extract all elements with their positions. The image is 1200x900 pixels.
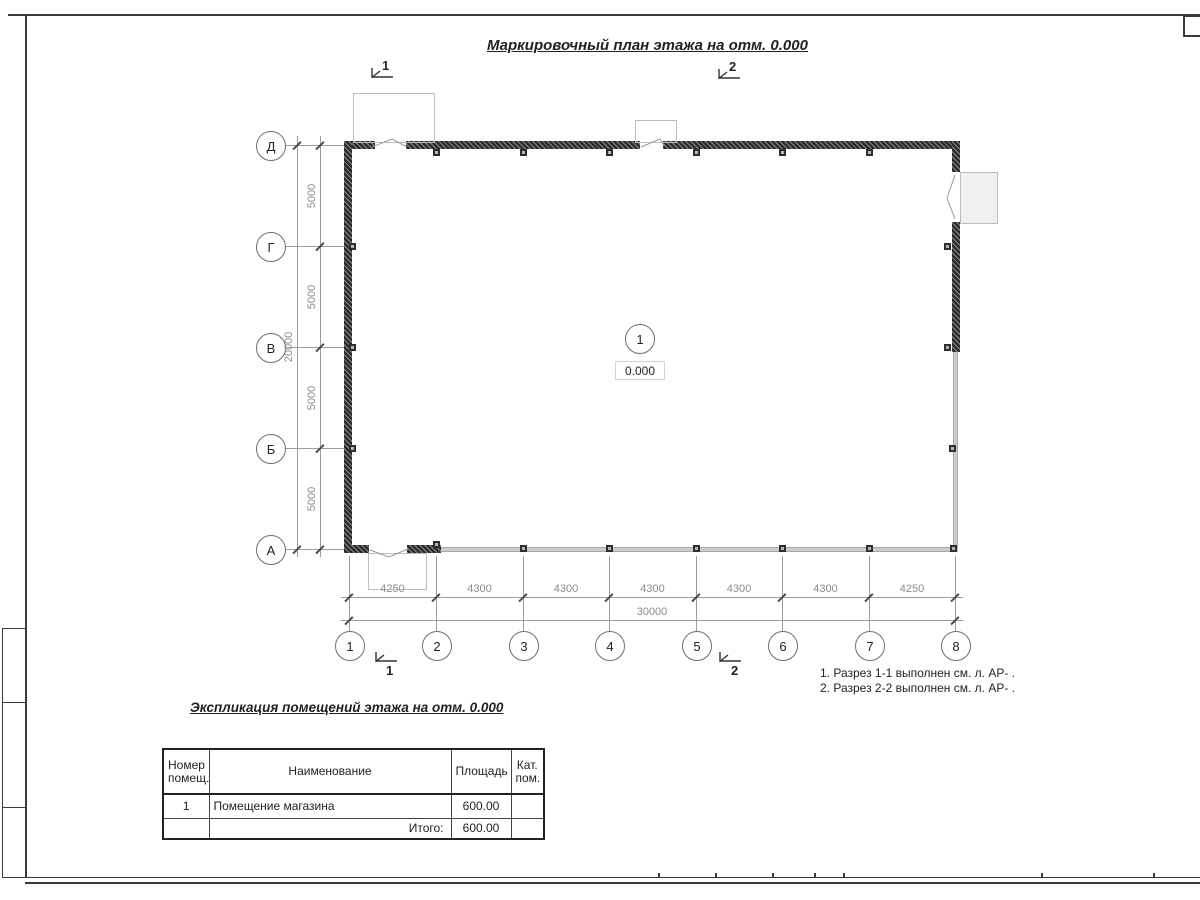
dimension-label: 5000 [306, 183, 318, 207]
dimension-total-label: 20000 [283, 332, 295, 363]
door-swing-icon [370, 139, 955, 557]
dimension-label: 5000 [306, 284, 318, 308]
dimension-label: 4300 [727, 583, 751, 595]
dimension-label: 4300 [554, 583, 578, 595]
column-marker [779, 545, 786, 552]
column-marker [433, 149, 440, 156]
title-block-divider [715, 873, 717, 878]
column-marker [349, 344, 356, 351]
column-marker [606, 545, 613, 552]
axis-col-bubble: 4 [595, 631, 625, 661]
axis-leader-line [284, 549, 344, 550]
section-label-1-top: 1 [382, 58, 389, 73]
axis-row-bubble: А [256, 535, 286, 565]
column-marker [520, 149, 527, 156]
cell-room-name: Помещение магазина [209, 794, 451, 818]
dimension-total-label: 30000 [637, 606, 668, 618]
section-label-2-bottom: 2 [731, 663, 738, 678]
column-marker [779, 149, 786, 156]
col-header-name: Наименование [209, 749, 451, 794]
title-block-divider [658, 873, 660, 878]
col-header-room-number: Номер помещ. [163, 749, 209, 794]
column-marker [949, 445, 956, 452]
section-label-2-top: 2 [729, 59, 736, 74]
column-marker [944, 243, 951, 250]
axis-col-bubble: 6 [768, 631, 798, 661]
axis-col-bubble: 8 [941, 631, 971, 661]
table-total-row: Итого: 600.00 [163, 818, 544, 839]
axis-row-bubble: Г [256, 232, 286, 262]
column-marker [349, 445, 356, 452]
drawing-sheet: { "drawing": { "title": "Маркировочный п… [0, 0, 1200, 900]
cell-room-number: 1 [163, 794, 209, 818]
column-marker [433, 541, 440, 548]
title-block-divider [1041, 873, 1043, 878]
dimension-label: 4300 [467, 583, 491, 595]
column-marker [950, 545, 957, 552]
cell-room-category [511, 794, 544, 818]
title-block-divider [1153, 873, 1155, 878]
axis-leader-line [284, 448, 344, 449]
col-header-area: Площадь [451, 749, 511, 794]
column-marker [520, 545, 527, 552]
dimension-label: 5000 [306, 385, 318, 409]
title-block-divider [772, 873, 774, 878]
axis-row-bubble: Д [256, 131, 286, 161]
title-block-divider [814, 873, 816, 878]
section-label-1-bottom: 1 [386, 663, 393, 678]
axis-col-bubble: 5 [682, 631, 712, 661]
axis-col-bubble: 3 [509, 631, 539, 661]
column-marker [866, 149, 873, 156]
dimension-label: 4250 [900, 583, 924, 595]
dimension-label: 4300 [640, 583, 664, 595]
column-marker [349, 243, 356, 250]
axis-col-bubble: 1 [335, 631, 365, 661]
room-number-bubble: 1 [625, 324, 655, 354]
column-marker [866, 545, 873, 552]
axis-row-bubble: Б [256, 434, 286, 464]
axis-col-bubble: 2 [422, 631, 452, 661]
dimension-label: 5000 [306, 486, 318, 510]
total-area: 600.00 [451, 818, 511, 839]
axis-leader-line [284, 246, 344, 247]
dimension-label: 4250 [380, 583, 404, 595]
column-marker [693, 149, 700, 156]
explication-table: Номер помещ. Наименование Площадь Кат. п… [162, 748, 545, 840]
dimension-label: 4300 [813, 583, 837, 595]
table-row: 1 Помещение магазина 600.00 [163, 794, 544, 818]
total-label: Итого: [209, 818, 451, 839]
room-elevation-box: 0.000 [615, 361, 665, 380]
column-marker [693, 545, 700, 552]
column-marker [944, 344, 951, 351]
column-marker [606, 149, 613, 156]
title-block-divider [843, 873, 845, 878]
cell-total-category [511, 818, 544, 839]
col-header-category: Кат. пом. [511, 749, 544, 794]
axis-col-bubble: 7 [855, 631, 885, 661]
section-mark-icon [372, 68, 741, 662]
cell-total-empty [163, 818, 209, 839]
axis-leader-line [284, 145, 344, 146]
cell-room-area: 600.00 [451, 794, 511, 818]
axis-row-bubble: В [256, 333, 286, 363]
